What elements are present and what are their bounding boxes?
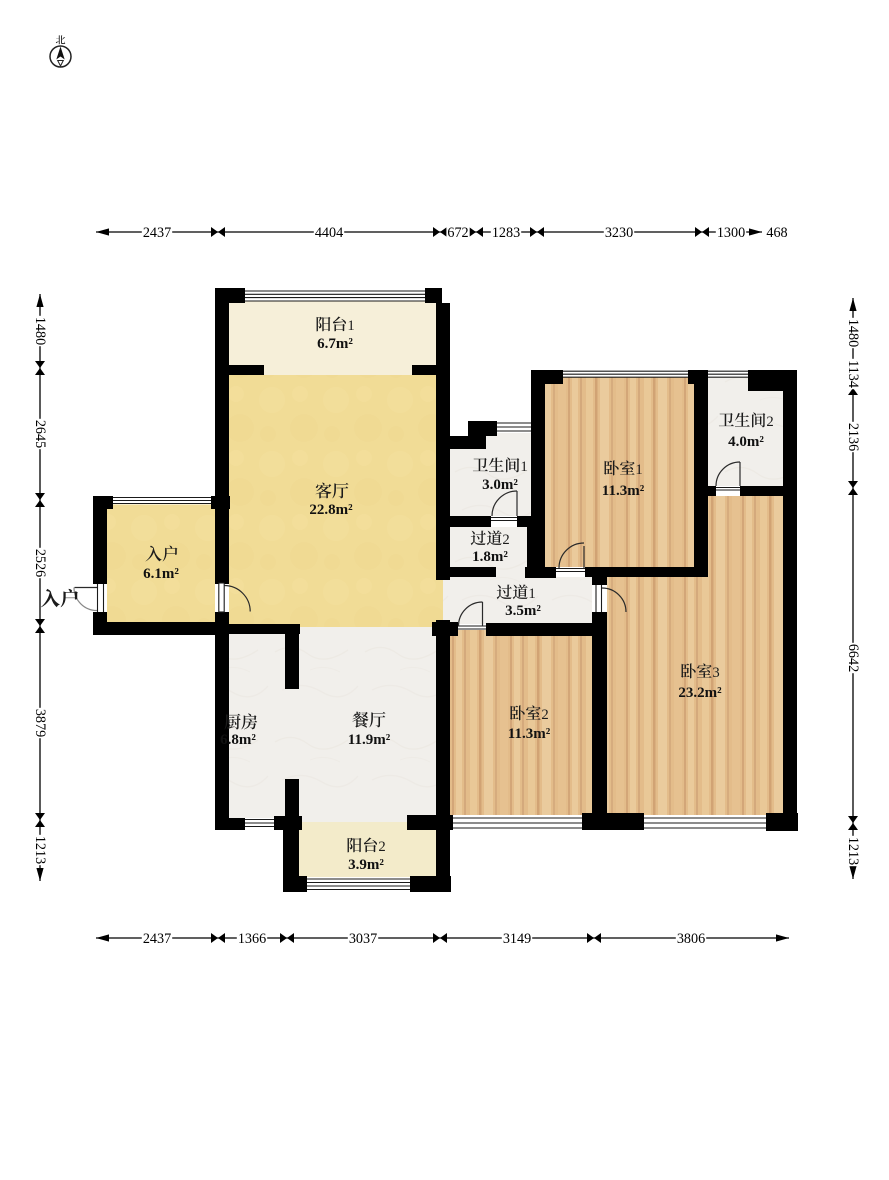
svg-text:22.8m²: 22.8m² [309, 502, 353, 518]
svg-text:3879: 3879 [32, 709, 48, 737]
svg-text:23.2m²: 23.2m² [678, 685, 722, 701]
svg-text:3.0m²: 3.0m² [482, 477, 518, 493]
svg-text:1: 1 [528, 586, 535, 602]
svg-text:6.8m²: 6.8m² [220, 732, 256, 748]
svg-text:3.9m²: 3.9m² [348, 857, 384, 873]
svg-text:3806: 3806 [677, 931, 705, 947]
svg-text:6.7m²: 6.7m² [317, 336, 353, 352]
svg-text:1480: 1480 [845, 319, 861, 347]
svg-text:6.1m²: 6.1m² [143, 566, 179, 582]
svg-text:6642: 6642 [845, 644, 861, 672]
svg-text:2645: 2645 [32, 420, 48, 448]
svg-text:3149: 3149 [503, 931, 531, 947]
svg-text:11.3m²: 11.3m² [508, 726, 551, 742]
svg-text:2136: 2136 [845, 423, 861, 451]
svg-text:2: 2 [502, 532, 509, 548]
svg-text:2: 2 [541, 707, 548, 723]
svg-text:2: 2 [378, 839, 385, 855]
svg-text:1134: 1134 [845, 360, 861, 388]
svg-text:1.8m²: 1.8m² [472, 549, 508, 565]
svg-text:1: 1 [635, 462, 642, 478]
svg-text:2437: 2437 [143, 225, 171, 241]
svg-text:672: 672 [447, 225, 468, 241]
svg-text:2437: 2437 [143, 931, 171, 947]
svg-text:1283: 1283 [492, 225, 520, 241]
svg-text:11.9m²: 11.9m² [348, 732, 391, 748]
svg-text:1480: 1480 [32, 317, 48, 345]
svg-text:11.3m²: 11.3m² [602, 483, 645, 499]
svg-text:1213: 1213 [32, 836, 48, 864]
svg-text:3: 3 [712, 665, 719, 681]
svg-text:1: 1 [520, 459, 527, 475]
svg-text:4404: 4404 [315, 225, 343, 241]
svg-text:3037: 3037 [349, 931, 377, 947]
svg-text:3.5m²: 3.5m² [505, 603, 541, 619]
svg-text:3230: 3230 [605, 225, 633, 241]
svg-text:2: 2 [766, 414, 773, 430]
svg-text:1: 1 [347, 318, 354, 334]
svg-text:1300: 1300 [717, 225, 745, 241]
svg-text:4.0m²: 4.0m² [728, 434, 764, 450]
svg-text:468: 468 [766, 225, 787, 241]
svg-text:1213: 1213 [845, 837, 861, 865]
svg-text:1366: 1366 [238, 931, 266, 947]
svg-text:2526: 2526 [32, 549, 48, 577]
